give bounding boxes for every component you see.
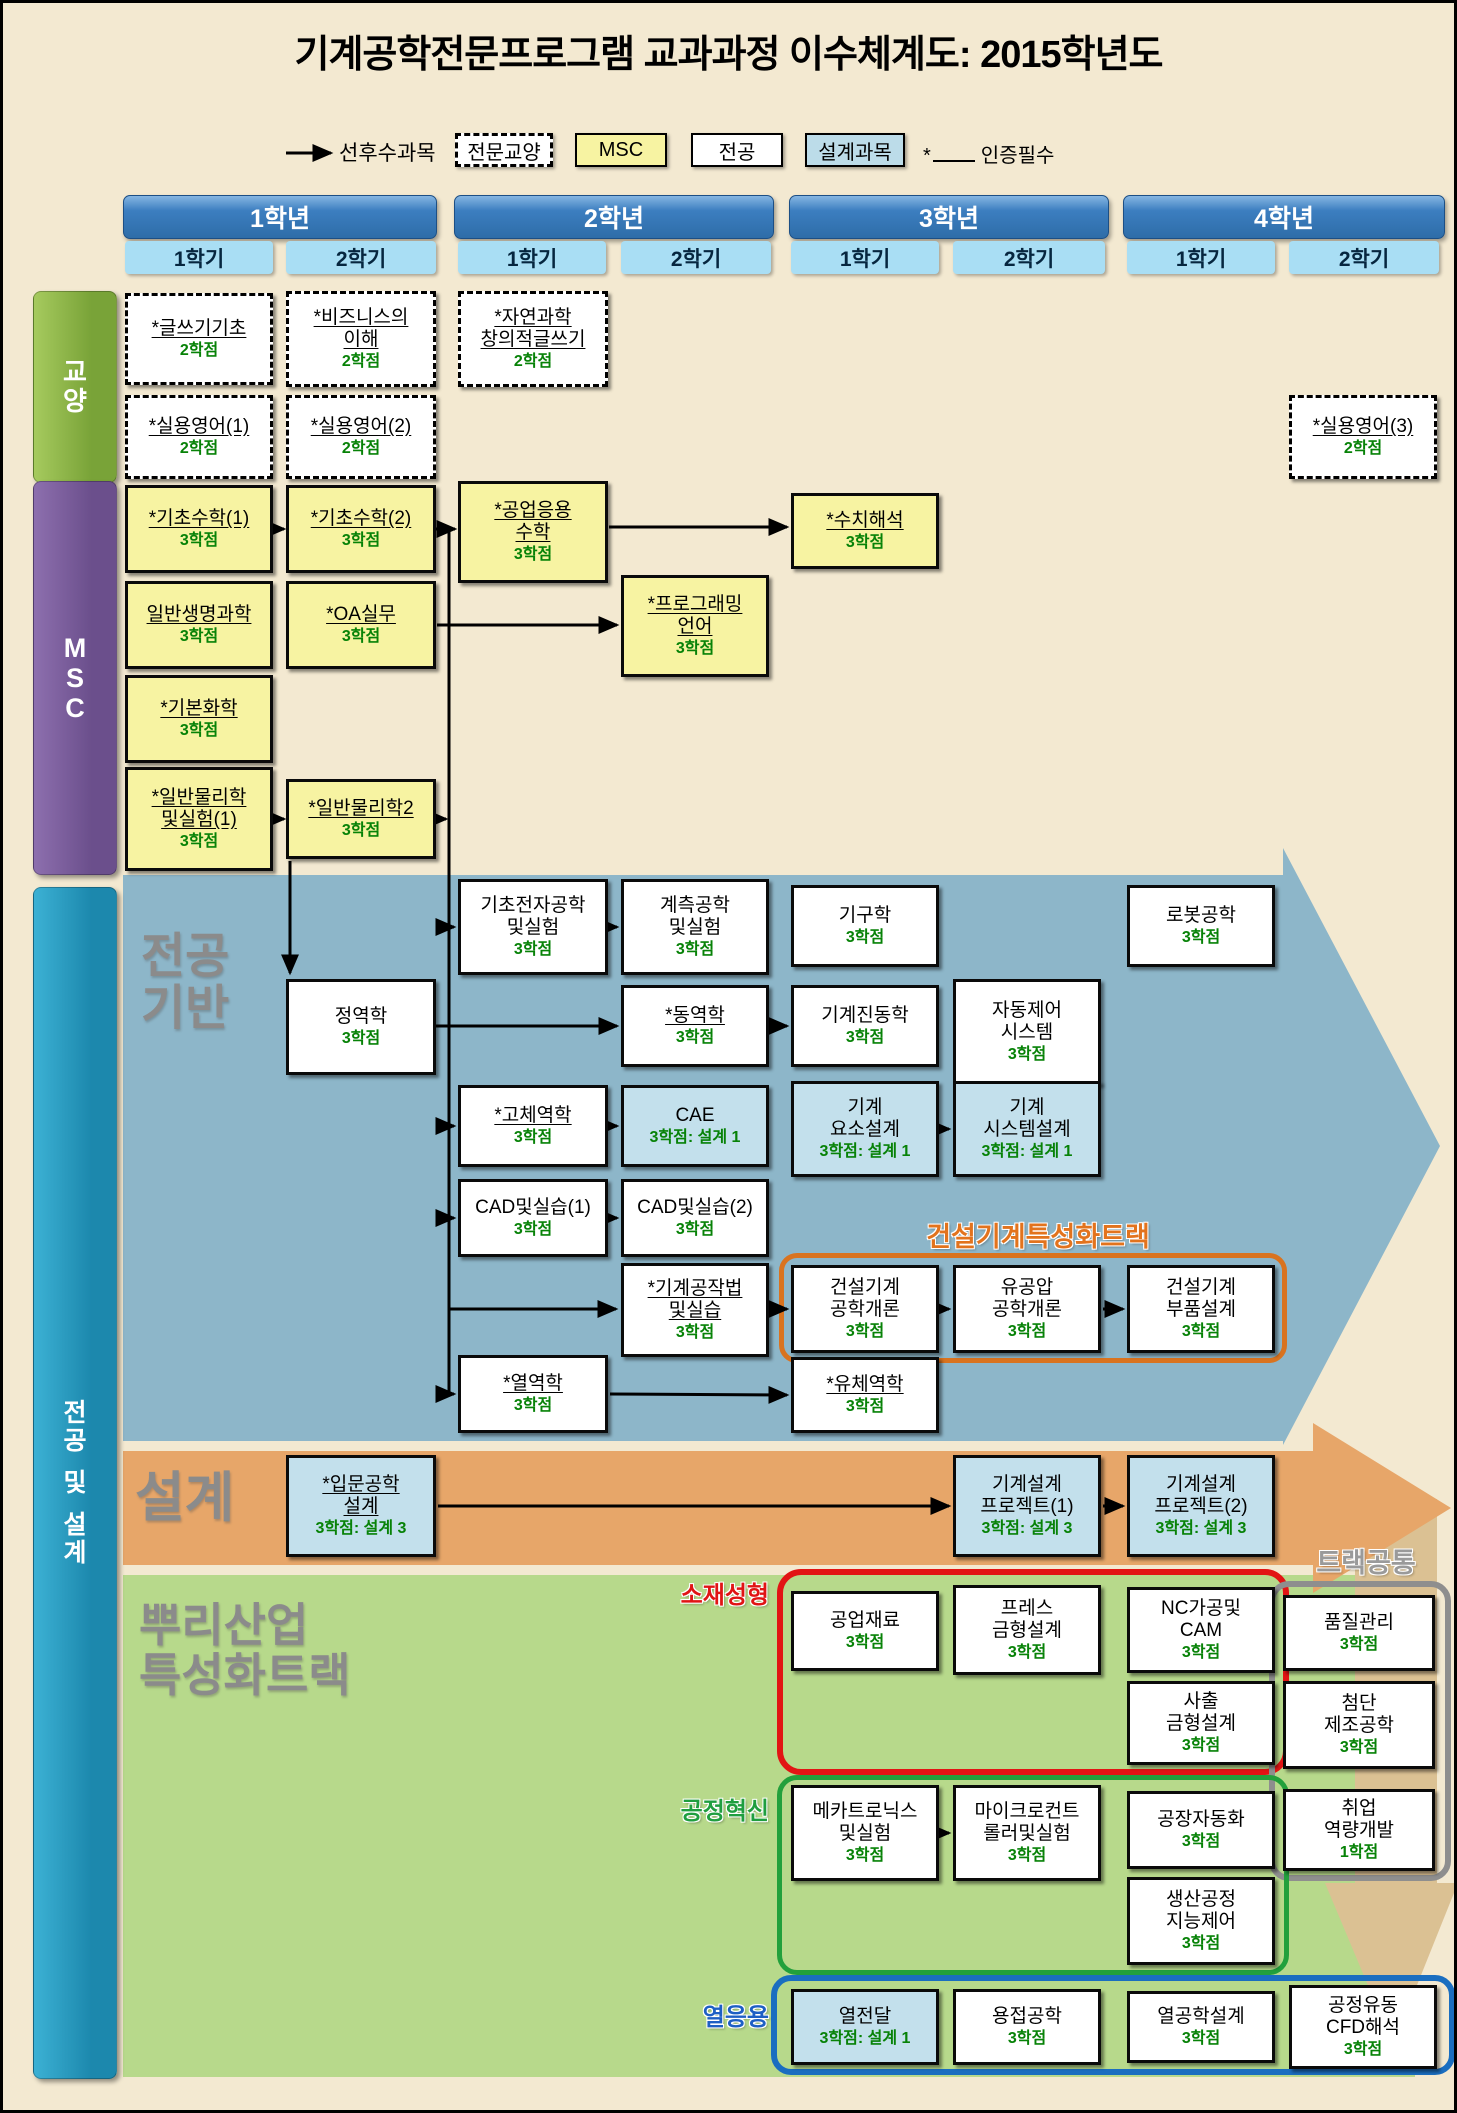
- course-name: 공정유동 CFD해석: [1326, 1995, 1400, 2039]
- course-credit: 3학점: [1182, 1934, 1220, 1953]
- course-credit: 3학점: [514, 1220, 552, 1239]
- course-credit: 3학점: [1340, 1738, 1378, 1757]
- course-name: 메카트로닉스 및실험: [813, 1801, 918, 1845]
- course-name: 열전달: [839, 2006, 891, 2028]
- course-name: 유공압 공학개론: [992, 1277, 1062, 1321]
- course-credit: 3학점: [1340, 1635, 1378, 1654]
- course-credit: 3학점: 설계 3: [982, 1519, 1073, 1538]
- course-box-construction-machinery-intro: 건설기계 공학개론3학점: [791, 1265, 939, 1353]
- course-name: *자연과학 창의적글쓰기: [481, 307, 586, 351]
- course-credit: 3학점: 설계 1: [982, 1142, 1073, 1161]
- course-name: 공업재료: [830, 1610, 900, 1632]
- course-box-mechanical-vibrations: 기계진동학3학점: [791, 985, 939, 1067]
- course-name: 사출 금형설계: [1166, 1691, 1236, 1735]
- course-box-writing-basics: *글쓰기기초2학점: [125, 293, 273, 385]
- course-name: 로봇공학: [1166, 905, 1236, 927]
- course-box-thermodynamics: *열역학3학점: [458, 1355, 608, 1433]
- course-credit: 3학점: [1182, 1322, 1220, 1341]
- course-name: 마이크로컨트 롤러및실험: [975, 1801, 1080, 1845]
- course-box-production-process-intelligent-control: 생산공정 지능제어3학점: [1127, 1877, 1275, 1965]
- course-box-programming-language: *프로그래밍 언어3학점: [621, 575, 769, 677]
- course-box-hydraulics-pneumatics-intro: 유공압 공학개론3학점: [953, 1265, 1101, 1353]
- course-credit: 2학점: [180, 439, 218, 458]
- sidebar-bar-liberal: 교양: [33, 291, 117, 483]
- year-2-sem-1: 1학기: [458, 241, 606, 274]
- course-credit: 3학점: [846, 1397, 884, 1416]
- course-box-welding-engineering: 용접공학3학점: [953, 1989, 1101, 2065]
- course-credit: 3학점: [846, 928, 884, 947]
- course-name: *비즈니스의 이해: [314, 307, 409, 351]
- course-name: 정역학: [335, 1006, 387, 1028]
- course-name: CAE: [675, 1105, 714, 1127]
- course-box-general-life-science: 일반생명과학3학점: [125, 581, 273, 669]
- course-box-cad-practice-2: CAD및실습(2)3학점: [621, 1179, 769, 1257]
- course-name: 기구학: [839, 905, 891, 927]
- course-name: 건설기계 부품설계: [1166, 1277, 1236, 1321]
- course-credit: 3학점: [342, 531, 380, 550]
- course-name: 기계 시스템설계: [983, 1097, 1070, 1141]
- course-name: 첨단 제조공학: [1324, 1693, 1394, 1737]
- course-box-press-die-design: 프레스 금형설계3학점: [953, 1585, 1101, 1675]
- course-name: 취업 역량개발: [1324, 1798, 1394, 1842]
- course-credit: 3학점: [342, 821, 380, 840]
- course-credit: 3학점: [180, 531, 218, 550]
- course-box-machine-design-project-1: 기계설계 프로젝트(1)3학점: 설계 3: [953, 1455, 1101, 1557]
- course-credit: 3학점: 설계 1: [650, 1128, 741, 1147]
- course-box-numerical-analysis: *수치해석3학점: [791, 493, 939, 569]
- course-box-machine-design-project-2: 기계설계 프로젝트(2)3학점: 설계 3: [1127, 1455, 1275, 1557]
- course-name: NC가공및 CAM: [1161, 1598, 1241, 1642]
- course-credit: 3학점: [846, 533, 884, 552]
- course-box-intro-engineering-design: *입문공학 설계3학점: 설계 3: [286, 1455, 436, 1557]
- course-name: *고체역학: [494, 1105, 571, 1127]
- year-3-sem-1: 1학기: [791, 241, 939, 274]
- course-credit: 1학점: [1340, 1843, 1378, 1862]
- legend-msc-box: MSC: [575, 133, 667, 167]
- course-name: *일반물리학2: [308, 798, 413, 820]
- year-2-header: 2학년: [454, 195, 774, 239]
- course-name: *실용영어(3): [1313, 416, 1414, 438]
- course-name: *수치해석: [826, 510, 903, 532]
- course-credit: 3학점: [1008, 1045, 1046, 1064]
- track-label-process-innovation: 공정혁신: [631, 1791, 769, 1826]
- course-name: 기계설계 프로젝트(2): [1154, 1474, 1247, 1518]
- course-credit: 3학점: [1182, 1736, 1220, 1755]
- course-name: *기본화학: [160, 698, 237, 720]
- course-credit: 3학점: [676, 639, 714, 658]
- course-credit: 3학점: 설계 1: [820, 1142, 911, 1161]
- course-name: *기계공작법 및실습: [648, 1278, 743, 1322]
- curriculum-flowchart: 기계공학전문프로그램 교과과정 이수체계도: 2015학년도 선후수과목 전문교…: [0, 0, 1457, 2113]
- course-name: *프로그래밍 언어: [648, 594, 743, 638]
- course-box-oa-practice: *OA실무3학점: [286, 581, 436, 669]
- course-credit: 3학점: [1182, 928, 1220, 947]
- course-name: *열역학: [503, 1373, 563, 1395]
- sidebar-bar-major-design: 전공및설계: [33, 887, 117, 2079]
- course-box-fluid-mechanics: *유체역학3학점: [791, 1357, 939, 1433]
- course-box-process-flow-cfd: 공정유동 CFD해석3학점: [1289, 1985, 1437, 2069]
- course-name: 기계진동학: [821, 1005, 908, 1027]
- course-box-practical-english-1: *실용영어(1)2학점: [125, 395, 273, 479]
- course-name: 기계설계 프로젝트(1): [980, 1474, 1073, 1518]
- track-label-material-forming: 소재성형: [631, 1575, 769, 1610]
- year-3-sem-2: 2학기: [953, 241, 1105, 274]
- legend-prerequisite-label: 선후수과목: [339, 137, 436, 167]
- course-box-robotics: 로봇공학3학점: [1127, 885, 1275, 967]
- course-box-general-physics-lab-1: *일반물리학 및실험(1)3학점: [125, 767, 273, 871]
- course-credit: 3학점: [846, 1633, 884, 1652]
- section-title-root-industry: 뿌리산업 특성화트랙: [139, 1601, 351, 1700]
- legend-major-box: 전공: [691, 133, 783, 167]
- course-box-practical-english-3: *실용영어(3)2학점: [1289, 395, 1437, 479]
- course-box-injection-mold-design: 사출 금형설계3학점: [1127, 1681, 1275, 1765]
- course-credit: 3학점: [1182, 1643, 1220, 1662]
- connector-23: [610, 1394, 787, 1395]
- course-name: CAD및실습(2): [637, 1197, 753, 1219]
- course-credit: 3학점: [180, 832, 218, 851]
- sidebar-bar-msc: MSC: [33, 481, 117, 875]
- course-name: 건설기계 공학개론: [830, 1277, 900, 1321]
- course-box-cae: CAE3학점: 설계 1: [621, 1085, 769, 1167]
- course-name: *OA실무: [326, 604, 396, 626]
- course-box-mechatronics-lab: 메카트로닉스 및실험3학점: [791, 1785, 939, 1881]
- course-credit: 3학점: 설계 3: [316, 1519, 407, 1538]
- course-box-machine-element-design: 기계 요소설계3학점: 설계 1: [791, 1081, 939, 1177]
- course-name: *기초수학(2): [311, 508, 412, 530]
- course-box-basic-math-1: *기초수학(1)3학점: [125, 485, 273, 573]
- course-credit: 3학점: [180, 627, 218, 646]
- course-credit: 2학점: [342, 352, 380, 371]
- course-credit: 3학점: [1008, 1322, 1046, 1341]
- course-name: *실용영어(1): [149, 416, 250, 438]
- course-box-mechanisms: 기구학3학점: [791, 885, 939, 967]
- year-4-sem-1: 1학기: [1127, 241, 1275, 274]
- course-credit: 3학점: [342, 1029, 380, 1048]
- course-box-automatic-control-systems: 자동제어 시스템3학점: [953, 979, 1101, 1085]
- course-credit: 3학점: [676, 940, 714, 959]
- course-credit: 3학점: [676, 1323, 714, 1342]
- year-1-sem-1: 1학기: [125, 241, 273, 274]
- course-name: 기초전자공학 및실험: [481, 895, 586, 939]
- course-credit: 3학점: 설계 1: [820, 2029, 911, 2048]
- course-box-heat-transfer: 열전달3학점: 설계 1: [791, 1989, 939, 2065]
- course-credit: 3학점: [1008, 1846, 1046, 1865]
- course-credit: 3학점: [514, 940, 552, 959]
- section-title-design: 설계: [135, 1469, 234, 1527]
- asterisk: *: [923, 145, 931, 167]
- track-label-thermal-application: 열응용: [651, 1997, 769, 2032]
- course-name: CAD및실습(1): [475, 1197, 591, 1219]
- course-box-basic-electronics-lab: 기초전자공학 및실험3학점: [458, 879, 608, 975]
- year-1-header: 1학년: [123, 195, 437, 239]
- track-label-construction-track: 건설기계특성화트랙: [803, 1215, 1273, 1254]
- course-box-construction-machinery-parts-design: 건설기계 부품설계3학점: [1127, 1265, 1275, 1353]
- legend-liberal-box: 전문교양: [455, 133, 553, 167]
- course-credit: 3학점: [1008, 1643, 1046, 1662]
- course-box-quality-control: 품질관리3학점: [1283, 1595, 1435, 1671]
- page-title: 기계공학전문프로그램 교과과정 이수체계도: 2015학년도: [3, 23, 1454, 78]
- course-box-machine-system-design: 기계 시스템설계3학점: 설계 1: [953, 1081, 1101, 1177]
- course-box-engineering-materials: 공업재료3학점: [791, 1591, 939, 1671]
- course-credit: 3학점: [1182, 1832, 1220, 1851]
- course-credit: 2학점: [514, 352, 552, 371]
- course-name: 계측공학 및실험: [660, 895, 730, 939]
- course-box-basic-chemistry: *기본화학3학점: [125, 675, 273, 763]
- year-2-sem-2: 2학기: [621, 241, 771, 274]
- course-name: 일반생명과학: [147, 604, 252, 626]
- course-name: *기초수학(1): [149, 508, 250, 530]
- course-box-solid-mechanics: *고체역학3학점: [458, 1085, 608, 1167]
- course-name: *실용영어(2): [311, 416, 412, 438]
- course-credit: 3학점: [1008, 2029, 1046, 2048]
- course-box-general-physics-2: *일반물리학23학점: [286, 779, 436, 859]
- course-name: 용접공학: [992, 2006, 1062, 2028]
- course-name: 프레스 금형설계: [992, 1598, 1062, 1642]
- course-box-practical-english-2: *실용영어(2)2학점: [286, 395, 436, 479]
- course-name: *공업응용 수학: [494, 500, 571, 544]
- course-name: *유체역학: [826, 1374, 903, 1396]
- course-name: 공장자동화: [1157, 1809, 1244, 1831]
- course-credit: 3학점: [1182, 2029, 1220, 2048]
- course-credit: 3학점: [514, 1128, 552, 1147]
- course-name: 품질관리: [1324, 1612, 1394, 1634]
- course-name: 생산공정 지능제어: [1166, 1889, 1236, 1933]
- course-name: 기계 요소설계: [830, 1097, 900, 1141]
- underline-sample: [933, 146, 975, 162]
- course-credit: 3학점: [676, 1028, 714, 1047]
- course-credit: 3학점: [342, 627, 380, 646]
- course-box-natural-science-creative-writing: *자연과학 창의적글쓰기2학점: [458, 291, 608, 387]
- course-box-dynamics: *동역학3학점: [621, 985, 769, 1067]
- year-3-header: 3학년: [789, 195, 1109, 239]
- course-name: *입문공학 설계: [322, 1474, 399, 1518]
- course-name: 자동제어 시스템: [992, 1000, 1062, 1044]
- course-box-microcontroller-lab: 마이크로컨트 롤러및실험3학점: [953, 1785, 1101, 1881]
- year-1-sem-2: 2학기: [286, 241, 436, 274]
- course-credit: 2학점: [1344, 439, 1382, 458]
- course-credit: 3학점: [676, 1220, 714, 1239]
- course-box-engineering-applied-math: *공업응용 수학3학점: [458, 481, 608, 583]
- course-box-thermal-engineering-design: 열공학설계3학점: [1127, 1991, 1275, 2063]
- course-name: *동역학: [665, 1005, 725, 1027]
- legend-certification-required: *인증필수: [923, 139, 1054, 168]
- course-credit: 3학점: [846, 1322, 884, 1341]
- track-label-track-common: 트랙공통: [1281, 1541, 1451, 1580]
- course-credit: 3학점: [846, 1846, 884, 1865]
- course-credit: 3학점: [1344, 2040, 1382, 2059]
- course-credit: 3학점: [180, 721, 218, 740]
- course-credit: 2학점: [180, 341, 218, 360]
- course-name: *글쓰기기초: [152, 318, 247, 340]
- course-credit: 2학점: [342, 439, 380, 458]
- year-4-header: 4학년: [1123, 195, 1445, 239]
- course-box-advanced-manufacturing: 첨단 제조공학3학점: [1283, 1681, 1435, 1769]
- section-title-major-base: 전공 기반: [141, 931, 229, 1035]
- course-box-career-competency: 취업 역량개발1학점: [1283, 1789, 1435, 1871]
- course-credit: 3학점: 설계 3: [1156, 1519, 1247, 1538]
- course-name: 열공학설계: [1157, 2006, 1244, 2028]
- course-box-machine-shop-practice: *기계공작법 및실습3학점: [621, 1263, 769, 1357]
- course-box-nc-machining-cam: NC가공및 CAM3학점: [1127, 1587, 1275, 1673]
- course-box-statics: 정역학3학점: [286, 979, 436, 1075]
- course-box-instrumentation-lab: 계측공학 및실험3학점: [621, 879, 769, 975]
- course-box-understanding-business: *비즈니스의 이해2학점: [286, 291, 436, 387]
- course-box-basic-math-2: *기초수학(2)3학점: [286, 485, 436, 573]
- course-credit: 3학점: [514, 1396, 552, 1415]
- course-name: *일반물리학 및실험(1): [152, 787, 247, 831]
- year-4-sem-2: 2학기: [1289, 241, 1439, 274]
- course-credit: 3학점: [846, 1028, 884, 1047]
- course-credit: 3학점: [514, 545, 552, 564]
- course-box-cad-practice-1: CAD및실습(1)3학점: [458, 1179, 608, 1257]
- legend-design-box: 설계과목: [805, 133, 905, 167]
- course-box-factory-automation: 공장자동화3학점: [1127, 1791, 1275, 1869]
